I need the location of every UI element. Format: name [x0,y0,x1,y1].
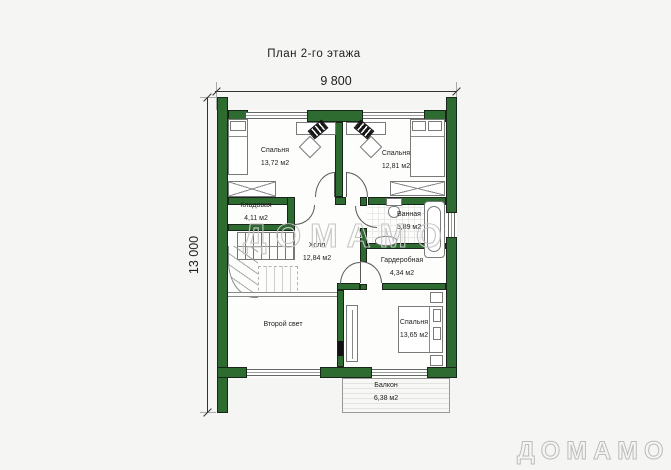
room-area: 13,65 м2 [400,329,428,342]
window-bedroom2 [363,112,424,119]
room-name: Спальня [261,144,289,157]
interior-wall-mid [335,197,346,205]
interior-wall-bedroom3-top [337,283,360,290]
room-area: 6,38 м2 [374,392,398,405]
room-label-wardrobe: Гардеробная 4,34 м2 [381,254,423,280]
nightstand-bedroom3 [430,292,443,303]
room-label-balcony: Балкон 6,38 м2 [374,379,398,405]
dimension-height-line [207,97,208,413]
floor-plan-canvas: План 2-го этажа 9 800 13 000 [0,0,671,470]
exterior-wall-bottom [320,367,372,378]
plan-title: План 2-го этажа [267,48,360,60]
dresser-line [352,310,353,359]
wardrobe-bedroom2 [390,181,445,196]
bed-bedroom2 [410,119,445,177]
interior-wall-bedroom-divider [335,122,343,197]
exterior-wall-right [446,237,457,378]
dimension-height-label: 13 000 [187,236,201,274]
bed-bedroom1 [228,119,248,175]
room-name: Спальня [382,147,410,160]
blanket-line [411,136,444,137]
toilet-tank [386,198,402,206]
room-label-bedroom1: Спальня 13,72 м2 [261,144,289,170]
watermark-center: ДОМАМО [243,217,451,255]
room-name: Спальня [400,316,428,329]
window-bedroom1 [246,112,307,119]
room-area: 4,34 м2 [381,267,423,280]
room-label-bedroom2: Спальня 12,81 м2 [382,147,410,173]
exterior-wall-bottom [427,367,457,378]
pillow [230,121,246,131]
blanket-line [229,136,247,137]
room-name: Гардеробная [381,254,423,267]
tv-bedroom3 [338,341,343,356]
window-second-light [247,369,320,376]
room-name: Второй свет [263,318,302,331]
interior-wall-hall-bath [360,197,367,206]
room-area: 13,72 м2 [261,157,289,170]
interior-wall-bedroom3-top [382,283,446,290]
room-name: Кладовая [240,199,271,212]
wardrobe-bedroom1 [228,181,276,197]
pillow [433,327,441,340]
room-area: 12,81 м2 [382,160,410,173]
window-bedroom3-balcony [372,369,427,376]
dimension-width-line [215,91,457,92]
room-label-bedroom3: Спальня 13,65 м2 [400,316,428,342]
exterior-wall-left [217,97,228,413]
nightstand-bedroom3 [430,355,443,366]
blanket-line [429,307,430,352]
room-name: Балкон [374,379,398,392]
dresser-bedroom3 [346,305,358,362]
pillow [428,121,442,131]
exterior-wall-right [446,97,457,213]
dimension-width-label: 9 800 [320,74,351,88]
exterior-wall-top [307,110,363,122]
room-label-second-light: Второй свет [263,318,302,331]
watermark-logo-corner: ДОМАМО [517,437,669,466]
second-light-railing [228,292,337,297]
exterior-wall-bottom [217,367,247,378]
pillow [412,121,426,131]
pillow [433,309,441,322]
interior-wall-hall-bath [360,284,367,290]
